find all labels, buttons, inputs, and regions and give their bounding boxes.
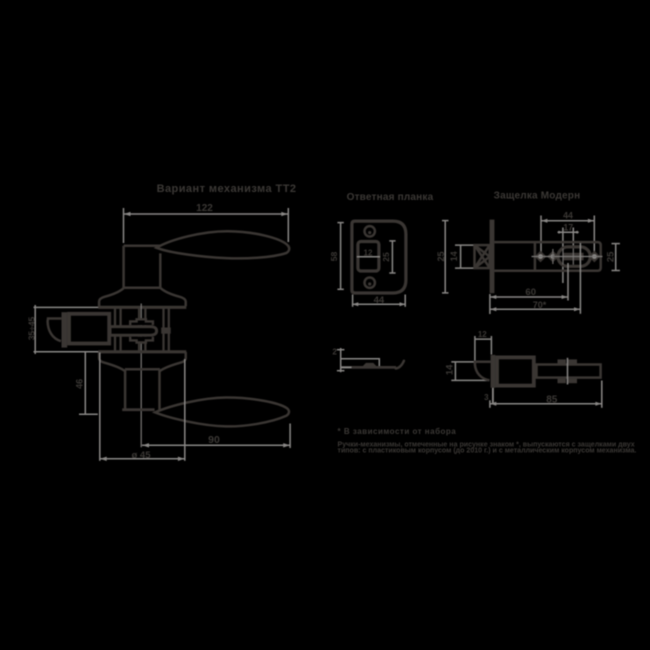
svg-text:типов: с пластиковым корпусом: типов: с пластиковым корпусом (до 2010 г… bbox=[338, 448, 637, 455]
svg-text:ø 45: ø 45 bbox=[131, 450, 151, 461]
svg-text:Вариант механизма ТТ2: Вариант механизма ТТ2 bbox=[157, 183, 297, 195]
svg-text:44: 44 bbox=[563, 210, 573, 220]
svg-text:44: 44 bbox=[374, 295, 385, 306]
svg-text:70*: 70* bbox=[533, 300, 547, 310]
svg-text:46: 46 bbox=[74, 379, 84, 389]
svg-text:122: 122 bbox=[196, 203, 213, 214]
svg-text:* В зависимости от набора: * В зависимости от набора bbox=[338, 427, 457, 436]
svg-text:2: 2 bbox=[332, 348, 337, 357]
svg-text:14: 14 bbox=[449, 251, 459, 261]
svg-text:25: 25 bbox=[606, 251, 617, 262]
svg-text:3: 3 bbox=[484, 393, 489, 402]
svg-text:85: 85 bbox=[546, 394, 558, 405]
svg-text:90: 90 bbox=[208, 434, 220, 446]
svg-text:14: 14 bbox=[444, 364, 455, 375]
svg-text:25: 25 bbox=[381, 252, 391, 262]
svg-text:12: 12 bbox=[364, 249, 373, 258]
svg-text:Ответная планка: Ответная планка bbox=[347, 192, 434, 203]
svg-text:60: 60 bbox=[525, 287, 536, 298]
svg-text:35÷45: 35÷45 bbox=[26, 316, 36, 340]
svg-text:12: 12 bbox=[478, 330, 487, 339]
svg-text:25: 25 bbox=[436, 251, 446, 261]
svg-text:58: 58 bbox=[329, 252, 339, 262]
svg-text:Защелка Модерн: Защелка Модерн bbox=[494, 191, 581, 202]
svg-text:17: 17 bbox=[563, 223, 573, 233]
